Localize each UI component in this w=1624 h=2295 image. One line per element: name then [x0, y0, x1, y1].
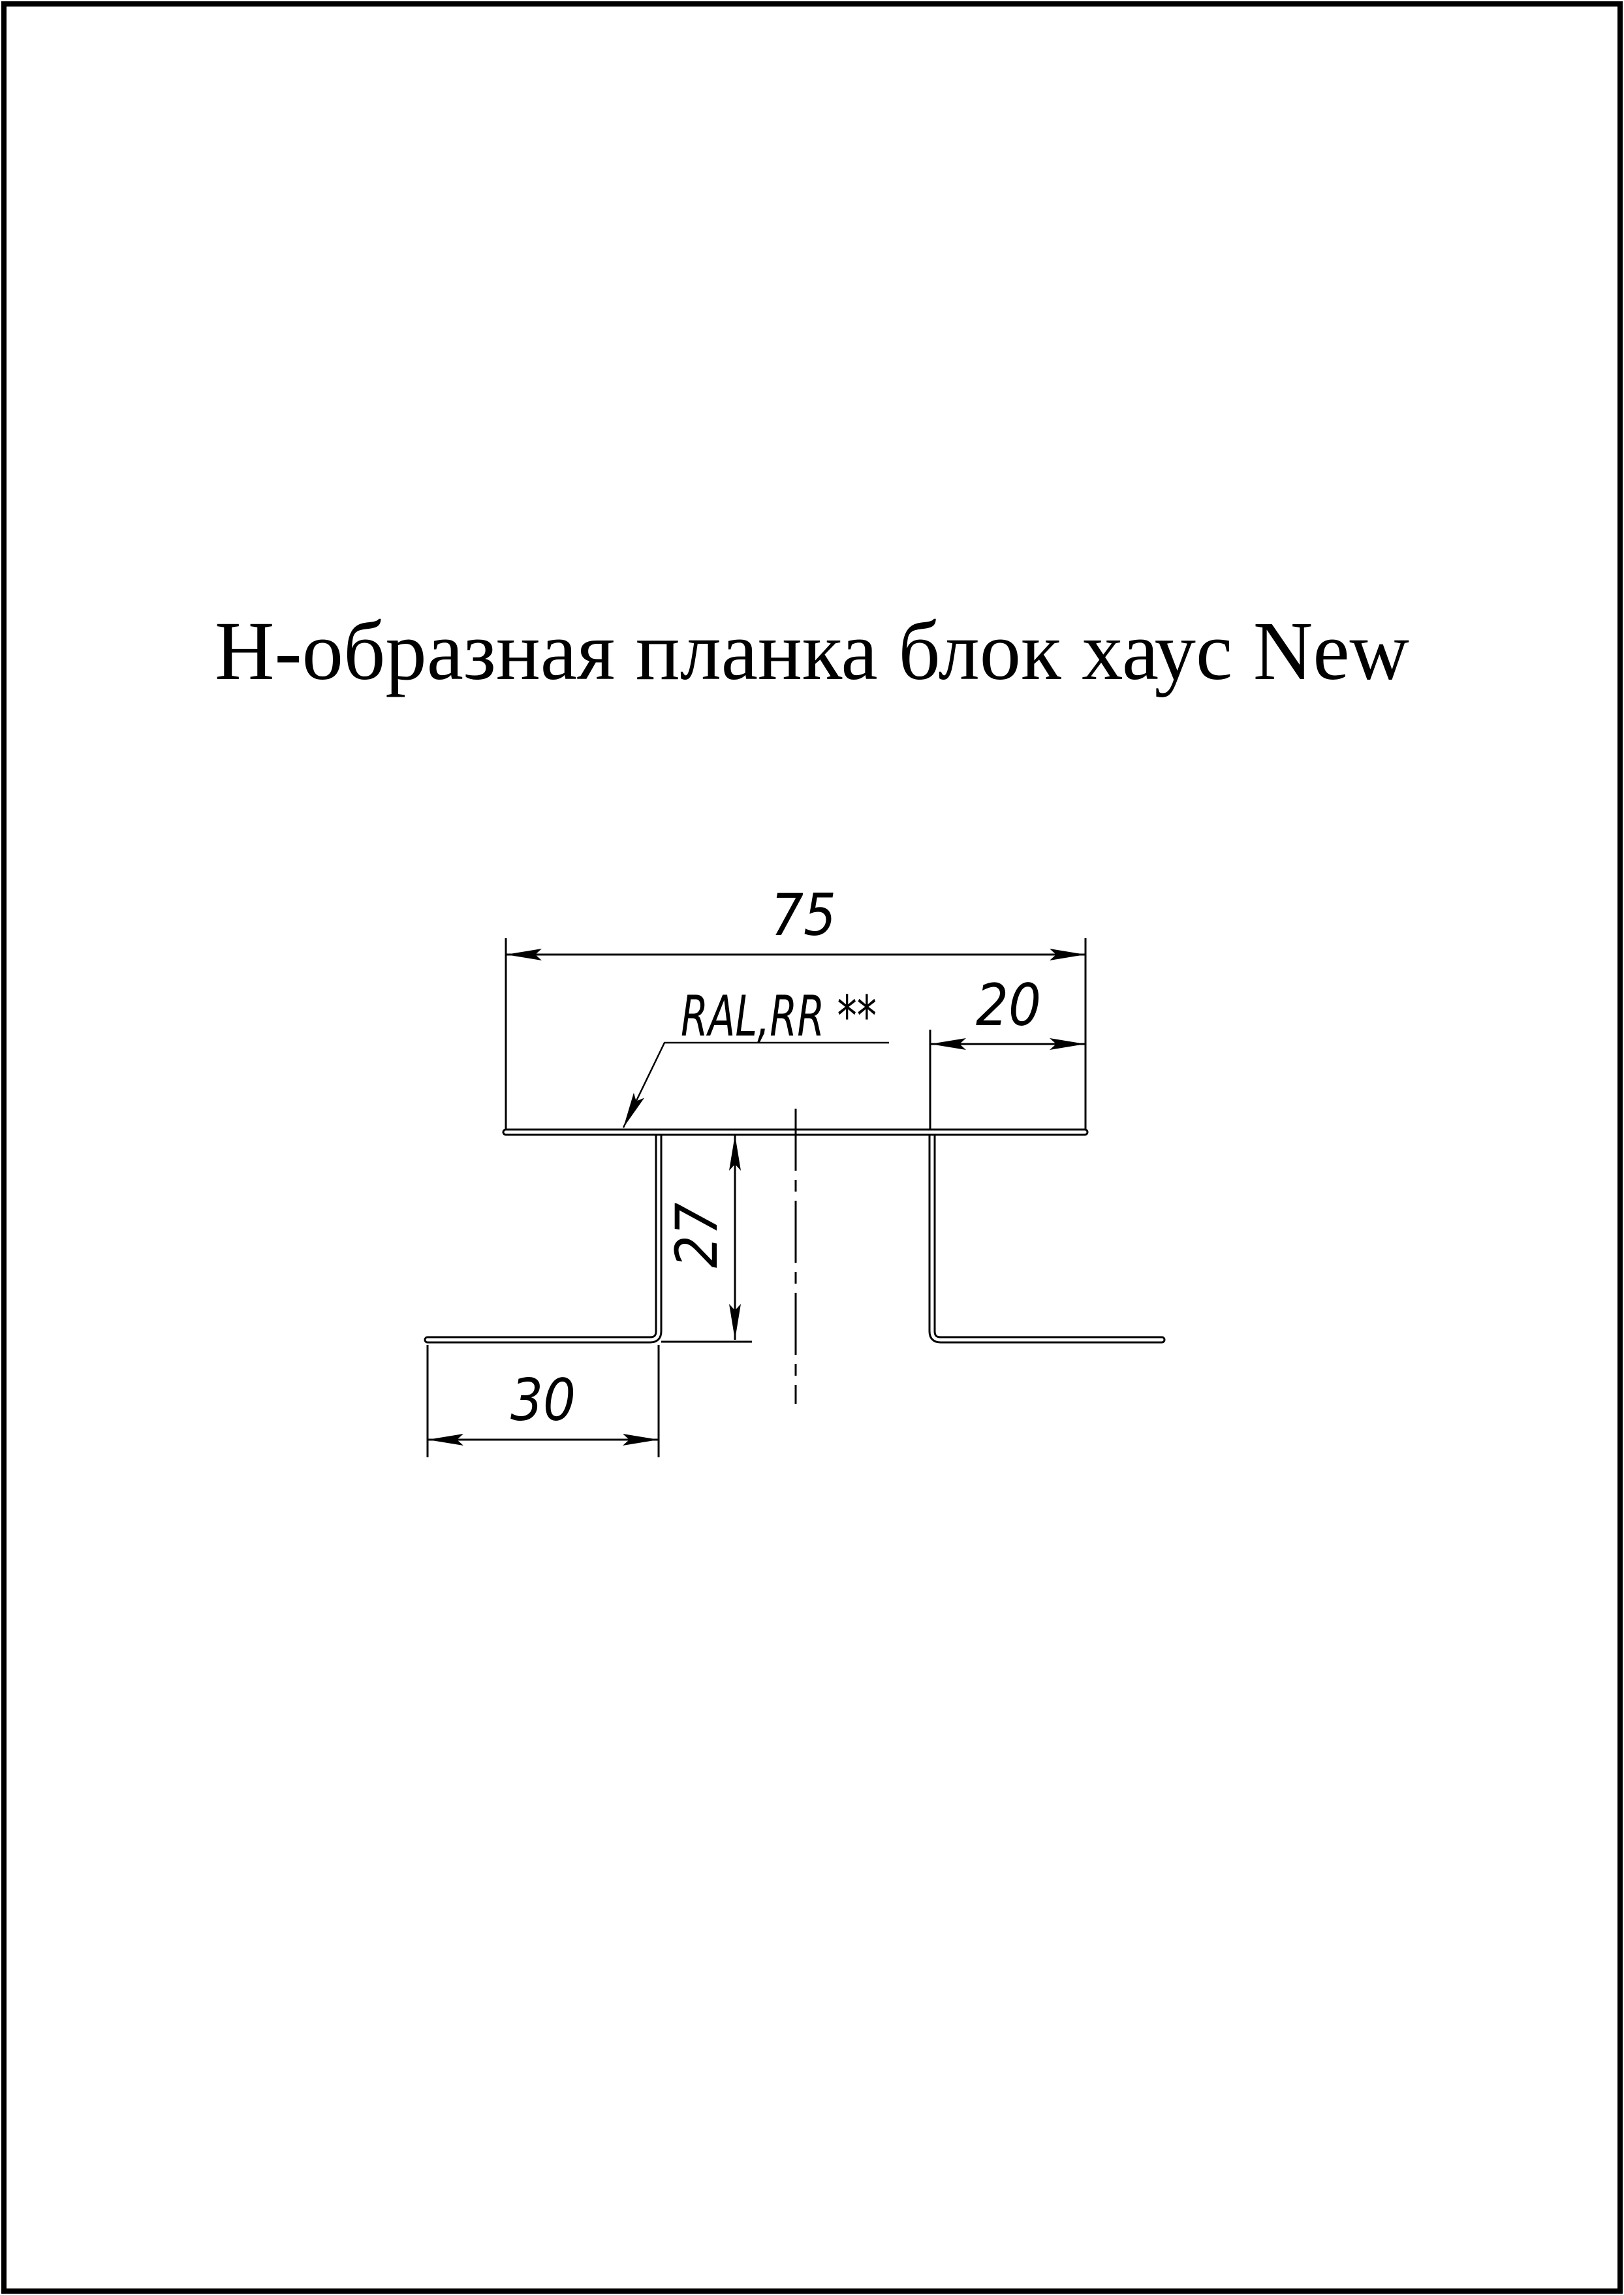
- leader-line: [623, 1043, 889, 1128]
- dimension-web-height: 27: [661, 1135, 752, 1342]
- left-foot-and-web-inner: [428, 1135, 659, 1340]
- coating-leader: RAL,RR **: [618, 984, 889, 1130]
- right-foot-and-web-inner: [932, 1135, 1162, 1340]
- page-title: Н-образная планка блок хаус New: [215, 605, 1409, 697]
- page-border: [4, 4, 1620, 2291]
- dimension-foot-width: 30: [428, 1345, 659, 1457]
- dimension-value-30: 30: [510, 1367, 576, 1434]
- drawing-sheet: Н-образная планка блок хаус New 75 20: [0, 0, 1624, 2295]
- leader-arrow-icon: [618, 1093, 644, 1130]
- technical-drawing: Н-образная планка блок хаус New 75 20: [0, 0, 1624, 2295]
- dimension-value-20: 20: [976, 972, 1041, 1039]
- right-foot-and-web-outline: [932, 1135, 1162, 1340]
- coating-label: RAL,RR **: [681, 984, 877, 1049]
- left-foot-and-web-outline: [428, 1135, 659, 1340]
- dimension-value-75: 75: [771, 881, 836, 949]
- dimension-value-27: 27: [663, 1203, 730, 1268]
- dimension-right-shelf: 20: [930, 972, 1085, 1129]
